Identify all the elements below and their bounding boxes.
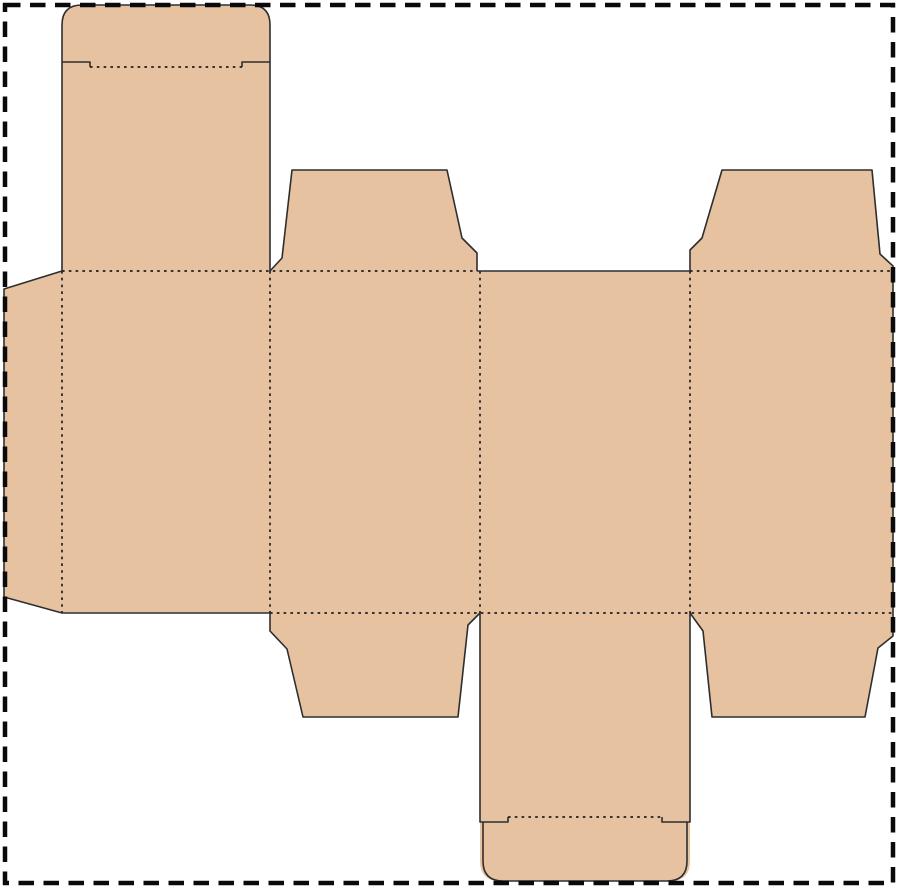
glue-tab (4, 271, 62, 613)
dieline-canvas (0, 0, 900, 888)
bottom-dust-flap-left (270, 613, 480, 717)
bottom-lid-tuck-panel (480, 613, 690, 881)
board-fills (4, 5, 893, 881)
top-lid-tuck-panel (62, 5, 270, 271)
top-dust-flap-left (270, 170, 477, 271)
main-panel-row (62, 271, 893, 613)
bottom-dust-flap-right (690, 613, 893, 717)
top-dust-flap-right (690, 170, 893, 271)
dieline-page (0, 0, 900, 888)
